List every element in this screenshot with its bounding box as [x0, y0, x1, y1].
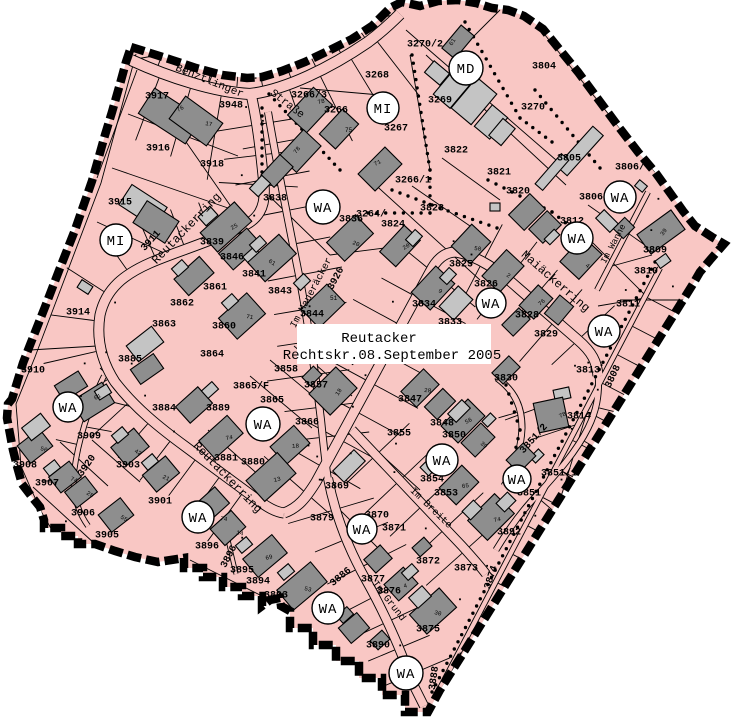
svg-text:3914: 3914 — [66, 308, 90, 319]
svg-text:3858: 3858 — [274, 365, 298, 376]
svg-text:3821: 3821 — [487, 168, 511, 179]
svg-text:3875: 3875 — [416, 625, 440, 636]
svg-text:3885: 3885 — [118, 355, 142, 366]
svg-text:3853: 3853 — [434, 489, 458, 500]
svg-text:3889: 3889 — [206, 404, 230, 415]
svg-text:3903: 3903 — [116, 461, 140, 472]
svg-text:3866: 3866 — [295, 418, 319, 429]
svg-text:3268: 3268 — [365, 71, 389, 82]
svg-text:3850: 3850 — [442, 431, 466, 442]
svg-text:3843: 3843 — [268, 287, 292, 298]
svg-text:3895: 3895 — [230, 566, 254, 577]
svg-text:3864: 3864 — [200, 350, 224, 361]
svg-text:3872: 3872 — [416, 557, 440, 568]
svg-text:3916: 3916 — [146, 144, 170, 155]
svg-text:3841: 3841 — [242, 270, 266, 281]
svg-text:3814: 3814 — [567, 412, 591, 423]
svg-text:WA: WA — [595, 325, 614, 341]
svg-text:3838: 3838 — [263, 194, 287, 205]
svg-text:Rechtskr.08.September 2005: Rechtskr.08.September 2005 — [283, 348, 501, 364]
svg-text:51: 51 — [330, 295, 338, 302]
svg-text:WA: WA — [568, 232, 587, 248]
svg-text:3909: 3909 — [77, 432, 101, 443]
svg-text:3270/2: 3270/2 — [407, 39, 443, 51]
svg-text:3908: 3908 — [13, 461, 37, 472]
svg-text:3839: 3839 — [200, 238, 224, 249]
svg-text:3828: 3828 — [515, 311, 539, 322]
svg-text:3266/1: 3266/1 — [395, 175, 431, 187]
svg-text:3906: 3906 — [71, 509, 95, 520]
svg-text:3915: 3915 — [108, 198, 132, 209]
svg-text:3880: 3880 — [241, 458, 265, 469]
svg-text:3846: 3846 — [220, 253, 244, 264]
svg-text:3267: 3267 — [384, 124, 408, 135]
svg-text:WA: WA — [189, 511, 208, 527]
svg-text:3873: 3873 — [454, 564, 478, 575]
svg-text:3884: 3884 — [152, 404, 176, 415]
svg-text:3918: 3918 — [200, 160, 224, 171]
svg-text:3896: 3896 — [195, 542, 219, 553]
svg-text:3269: 3269 — [428, 96, 452, 107]
svg-text:3917: 3917 — [145, 92, 169, 103]
svg-text:3862: 3862 — [170, 299, 194, 310]
svg-text:3804: 3804 — [532, 62, 556, 73]
svg-text:3825: 3825 — [449, 260, 473, 271]
svg-text:3806/: 3806/ — [615, 162, 645, 174]
svg-text:3824: 3824 — [381, 220, 405, 231]
svg-text:3266: 3266 — [324, 106, 348, 117]
svg-text:Reutacker: Reutacker — [341, 331, 417, 347]
svg-text:WA: WA — [254, 418, 273, 434]
svg-text:3822: 3822 — [444, 146, 468, 157]
svg-text:3830: 3830 — [494, 374, 518, 385]
svg-text:3829: 3829 — [534, 330, 558, 341]
svg-text:MI: MI — [107, 234, 126, 250]
svg-text:3811: 3811 — [616, 300, 640, 311]
svg-text:3270: 3270 — [521, 103, 545, 114]
svg-text:3855: 3855 — [387, 429, 411, 440]
svg-text:WA: WA — [433, 454, 452, 470]
svg-text:3809: 3809 — [643, 246, 667, 257]
svg-text:3865/F: 3865/F — [233, 381, 269, 393]
svg-text:WA: WA — [482, 297, 501, 313]
svg-text:3834: 3834 — [412, 300, 436, 311]
svg-text:WA: WA — [59, 401, 78, 417]
svg-text:3857: 3857 — [304, 381, 328, 392]
svg-text:3901: 3901 — [148, 497, 172, 508]
svg-text:3847: 3847 — [398, 395, 422, 406]
svg-text:3813: 3813 — [576, 366, 600, 377]
svg-text:3907: 3907 — [35, 479, 59, 490]
svg-text:28: 28 — [424, 387, 432, 394]
svg-text:3823: 3823 — [420, 204, 444, 215]
svg-text:3851/1: 3851/1 — [541, 468, 577, 480]
svg-text:MI: MI — [374, 102, 393, 118]
svg-text:WA: WA — [508, 473, 527, 489]
svg-text:3894: 3894 — [246, 577, 270, 588]
svg-text:WA: WA — [397, 667, 416, 683]
svg-text:50: 50 — [474, 245, 482, 253]
svg-text:3890: 3890 — [366, 641, 390, 652]
svg-text:3948: 3948 — [219, 101, 243, 112]
svg-text:WA: WA — [611, 191, 630, 207]
svg-text:3865: 3865 — [260, 396, 284, 407]
svg-text:MD: MD — [457, 62, 476, 78]
svg-text:3910: 3910 — [21, 366, 45, 377]
svg-text:3879: 3879 — [310, 514, 334, 525]
svg-text:3848: 3848 — [430, 419, 454, 430]
svg-text:3820: 3820 — [506, 187, 530, 198]
svg-text:3266/3: 3266/3 — [291, 90, 327, 102]
svg-text:3905: 3905 — [95, 531, 119, 542]
svg-text:3805: 3805 — [557, 154, 581, 165]
svg-text:3869: 3869 — [325, 482, 349, 493]
svg-text:WA: WA — [353, 523, 372, 539]
svg-text:3860: 3860 — [212, 322, 236, 333]
svg-text:3810: 3810 — [634, 267, 658, 278]
svg-text:WA: WA — [314, 201, 333, 217]
svg-text:3893: 3893 — [264, 591, 288, 602]
svg-text:WA: WA — [319, 602, 338, 618]
svg-text:75: 75 — [345, 127, 353, 134]
svg-text:3871: 3871 — [382, 524, 406, 535]
svg-text:3892: 3892 — [497, 528, 521, 539]
svg-text:65: 65 — [461, 482, 469, 490]
svg-text:18: 18 — [292, 442, 300, 450]
svg-text:3863: 3863 — [152, 320, 176, 331]
svg-text:3861: 3861 — [203, 283, 227, 294]
